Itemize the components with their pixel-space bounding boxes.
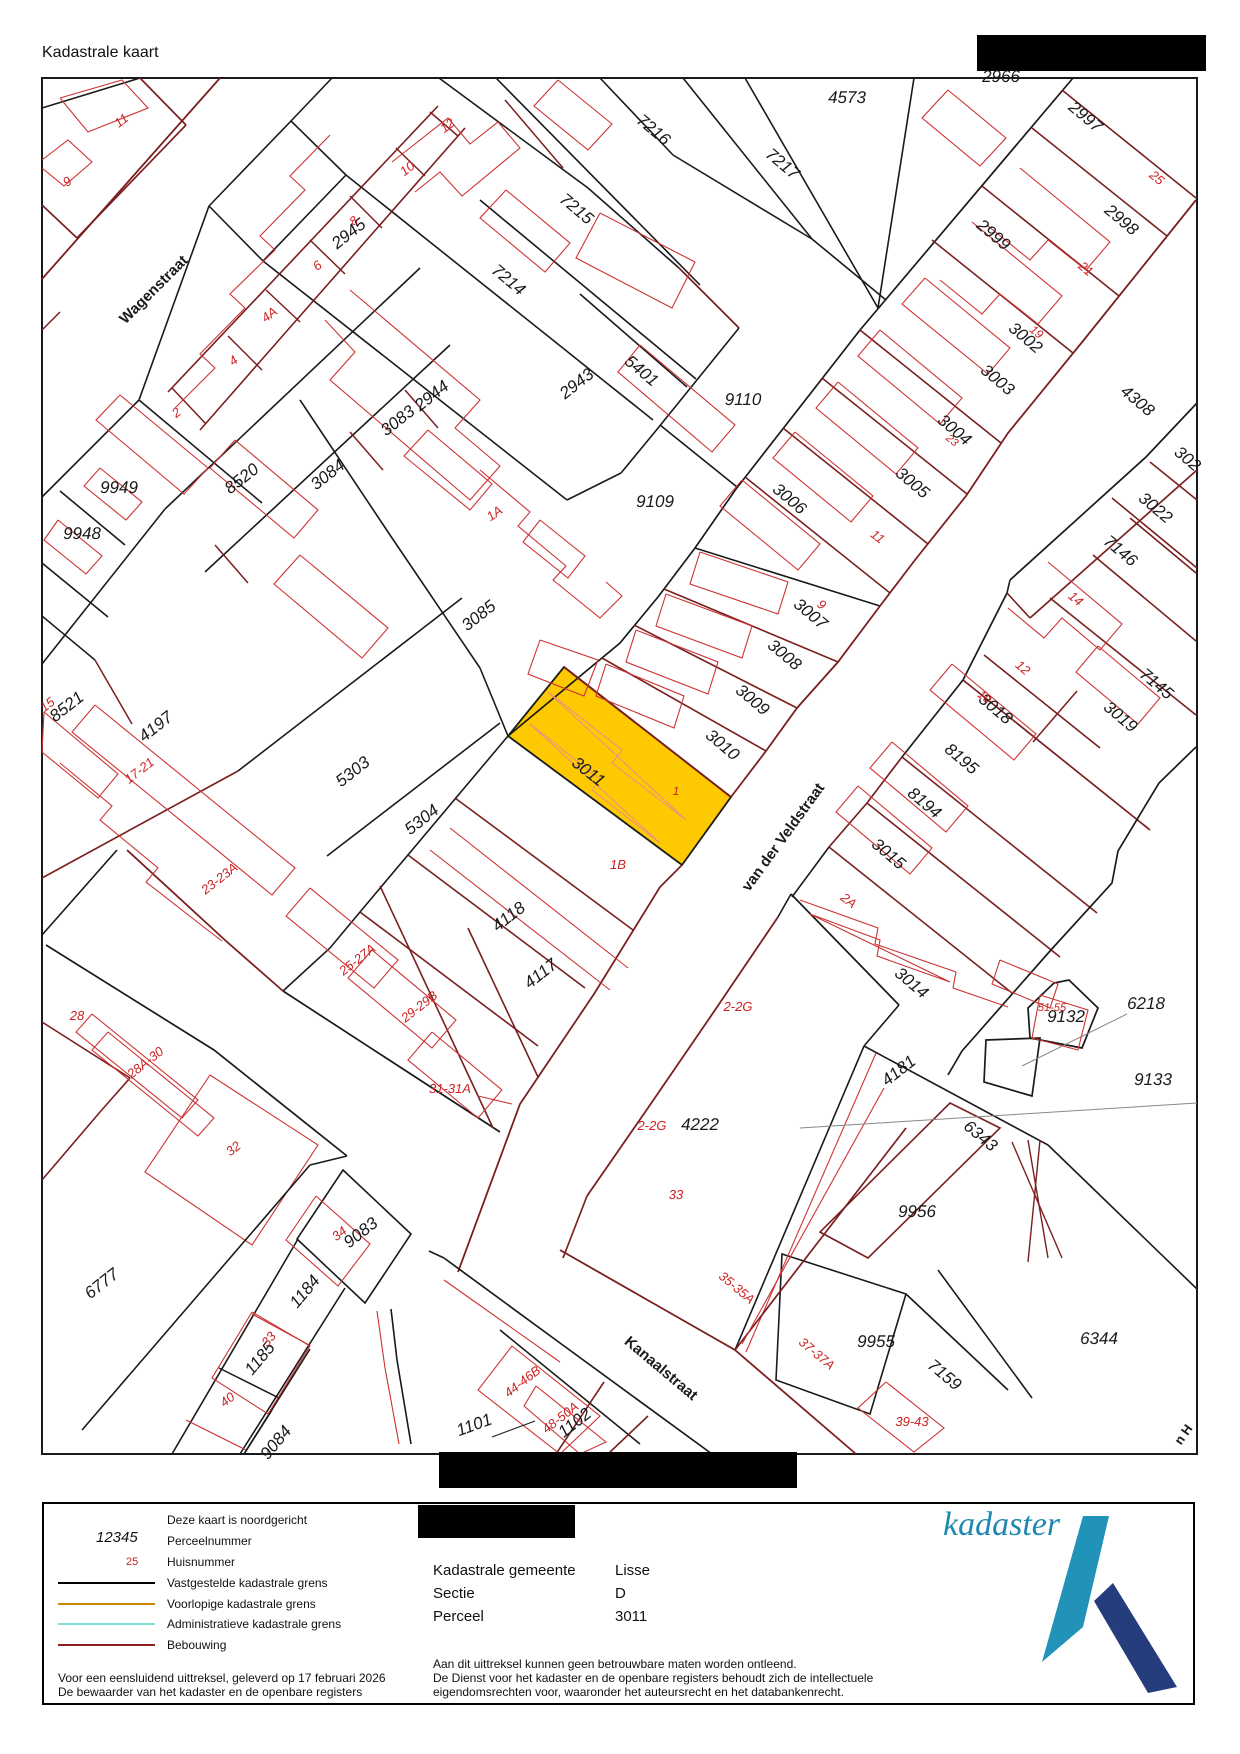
svg-text:31-31A: 31-31A [429,1081,471,1096]
svg-text:6: 6 [310,257,326,274]
svg-text:5304: 5304 [401,801,443,839]
svg-text:9949: 9949 [100,478,138,497]
svg-text:3019: 3019 [1100,697,1142,736]
svg-text:1184: 1184 [286,1271,324,1311]
svg-text:25-27A: 25-27A [335,941,378,979]
svg-text:4A: 4A [258,304,280,326]
svg-text:2997: 2997 [1064,97,1106,137]
svg-text:37-37A: 37-37A [796,1334,838,1372]
svg-text:9956: 9956 [898,1202,936,1221]
svg-text:2966: 2966 [981,67,1020,86]
svg-text:7216: 7216 [633,110,675,149]
svg-text:2-2G: 2-2G [637,1118,667,1133]
svg-text:4573: 4573 [828,88,866,107]
svg-text:4118: 4118 [488,898,529,936]
svg-text:5401: 5401 [621,351,662,390]
svg-text:9948: 9948 [63,524,101,543]
svg-text:3003: 3003 [977,360,1019,399]
svg-text:302: 302 [1171,442,1205,475]
svg-text:12: 12 [1013,657,1034,678]
svg-text:3008: 3008 [764,635,806,674]
svg-text:Kanaalstraat: Kanaalstraat [621,1333,701,1404]
svg-text:7145: 7145 [1136,664,1178,703]
svg-text:8520: 8520 [221,459,263,498]
svg-text:17-21: 17-21 [122,754,157,786]
svg-text:van der Veldstraat: van der Veldstraat [739,780,829,895]
svg-text:7215: 7215 [556,189,598,228]
svg-text:11: 11 [868,526,888,546]
svg-text:6218: 6218 [1127,994,1165,1013]
svg-text:51-55: 51-55 [1038,1002,1067,1014]
svg-text:4197: 4197 [135,707,177,746]
svg-text:2: 2 [168,404,184,421]
svg-text:3014: 3014 [891,963,932,1002]
svg-text:3085: 3085 [458,596,500,635]
svg-text:6343: 6343 [960,1116,1002,1155]
svg-text:1101: 1101 [454,1410,495,1440]
svg-text:4222: 4222 [681,1115,719,1134]
svg-text:29-29B: 29-29B [397,987,440,1025]
svg-text:3002: 3002 [1005,318,1047,357]
svg-text:9133: 9133 [1134,1070,1172,1089]
svg-text:44-46B: 44-46B [501,1362,544,1400]
svg-text:40: 40 [217,1389,238,1410]
svg-text:28A-30: 28A-30 [123,1043,167,1082]
svg-text:4117: 4117 [520,955,561,993]
svg-text:9: 9 [60,173,75,189]
svg-text:23-23A: 23-23A [197,860,240,898]
svg-text:9110: 9110 [725,390,762,409]
svg-text:3084: 3084 [307,456,349,494]
svg-text:11: 11 [111,110,131,130]
svg-text:6777: 6777 [81,1264,123,1303]
svg-text:1A: 1A [484,503,506,524]
svg-text:7159: 7159 [924,1355,966,1394]
svg-text:8194: 8194 [904,783,945,822]
svg-text:9955: 9955 [857,1332,895,1351]
svg-text:33: 33 [669,1187,684,1202]
svg-text:10: 10 [397,158,418,179]
svg-text:2998: 2998 [1100,200,1142,240]
svg-text:35-35A: 35-35A [716,1268,758,1306]
svg-text:3010: 3010 [702,725,744,764]
svg-text:4308: 4308 [1117,381,1159,420]
svg-text:6344: 6344 [1080,1329,1118,1348]
svg-text:n H: n H [1171,1422,1195,1448]
svg-text:32: 32 [223,1138,244,1159]
svg-text:2999: 2999 [972,215,1014,255]
svg-text:1B: 1B [610,857,626,872]
svg-text:8195: 8195 [941,739,983,778]
svg-text:25: 25 [1146,167,1168,189]
svg-text:39-43: 39-43 [895,1414,929,1429]
svg-text:3005: 3005 [892,463,934,502]
svg-text:Wagenstraat: Wagenstraat [116,252,191,327]
svg-text:2-2G: 2-2G [723,999,753,1014]
svg-text:5303: 5303 [332,752,374,791]
svg-text:7217: 7217 [762,144,804,183]
svg-text:4: 4 [226,352,241,368]
svg-text:1: 1 [673,784,680,798]
svg-text:28: 28 [69,1008,85,1023]
svg-text:9084: 9084 [256,1422,295,1463]
svg-text:2A: 2A [837,889,860,911]
svg-text:9109: 9109 [636,492,674,511]
